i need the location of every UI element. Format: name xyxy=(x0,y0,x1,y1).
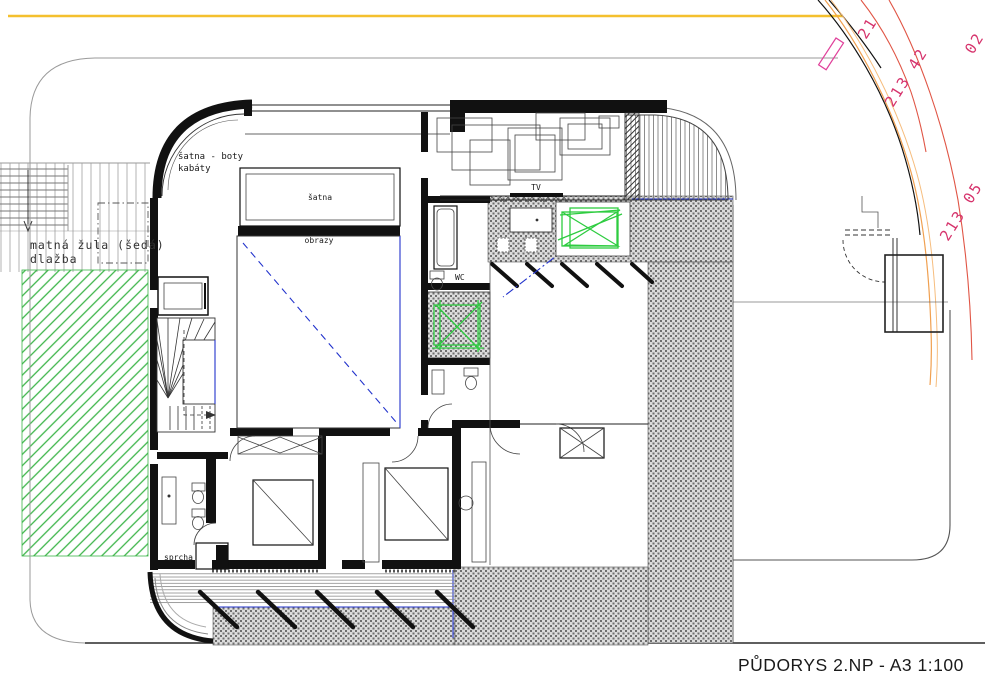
tv-board xyxy=(510,193,563,197)
floor-plan-drawing: 213 42 213 05 21 02 xyxy=(0,0,988,693)
entry-room-label-2: kabáty xyxy=(178,164,211,174)
bedroom-2 xyxy=(363,436,448,562)
curved-northwest-wall xyxy=(157,104,252,198)
wc-label: WC xyxy=(455,273,465,282)
tv-label: TV xyxy=(531,183,541,192)
exterior-stair-treads xyxy=(0,165,68,231)
closet-satna xyxy=(238,168,400,236)
elevation-label-213-05: 213 05 xyxy=(936,178,986,244)
drawing-title: PŮDORYS 2.NP - A3 1:100 xyxy=(738,654,964,675)
bathroom-upper xyxy=(430,206,457,290)
wardrobe-2 xyxy=(363,463,379,562)
elevation-label-partial-top: 21 xyxy=(854,14,881,42)
balcony-rect xyxy=(885,255,943,332)
elevator xyxy=(158,277,208,315)
hatched-east-wall xyxy=(625,113,639,200)
staircase xyxy=(157,318,216,432)
bedroom-1 xyxy=(230,436,322,545)
side-entry-steps xyxy=(843,196,943,332)
pictures-label: obrazy xyxy=(305,236,334,245)
roof-deck-northeast xyxy=(625,107,736,200)
floor-plan-canvas: 213 42 213 05 21 02 xyxy=(0,0,988,693)
lawn-area xyxy=(22,270,148,556)
bedroom-divider-wall xyxy=(318,436,326,569)
gallery-void xyxy=(237,236,400,428)
void-diagonal xyxy=(243,243,396,422)
washbasin xyxy=(459,496,473,510)
paving-note-1: matná žula (šedá) xyxy=(30,238,165,252)
building-walls xyxy=(150,100,667,570)
wardrobe-1 xyxy=(238,436,322,454)
pergola-slats xyxy=(492,264,652,286)
spa-room xyxy=(556,202,630,256)
north-wall-living xyxy=(452,100,667,113)
corridor-wall xyxy=(230,428,460,436)
elevation-label-partial-corner: 02 xyxy=(961,29,988,57)
entry-room-label-1: šatna - boty xyxy=(178,151,244,162)
shower-label: sprcha xyxy=(164,553,193,562)
gate-swing-arc xyxy=(843,240,885,282)
gate-marker-magenta xyxy=(819,38,844,70)
room-lower-right xyxy=(459,424,604,562)
closet-label: šatna xyxy=(308,192,332,202)
bathroom-mid xyxy=(428,368,478,428)
lower-terrace-outline xyxy=(733,196,950,643)
paving-note-2: dlažba xyxy=(30,252,78,266)
